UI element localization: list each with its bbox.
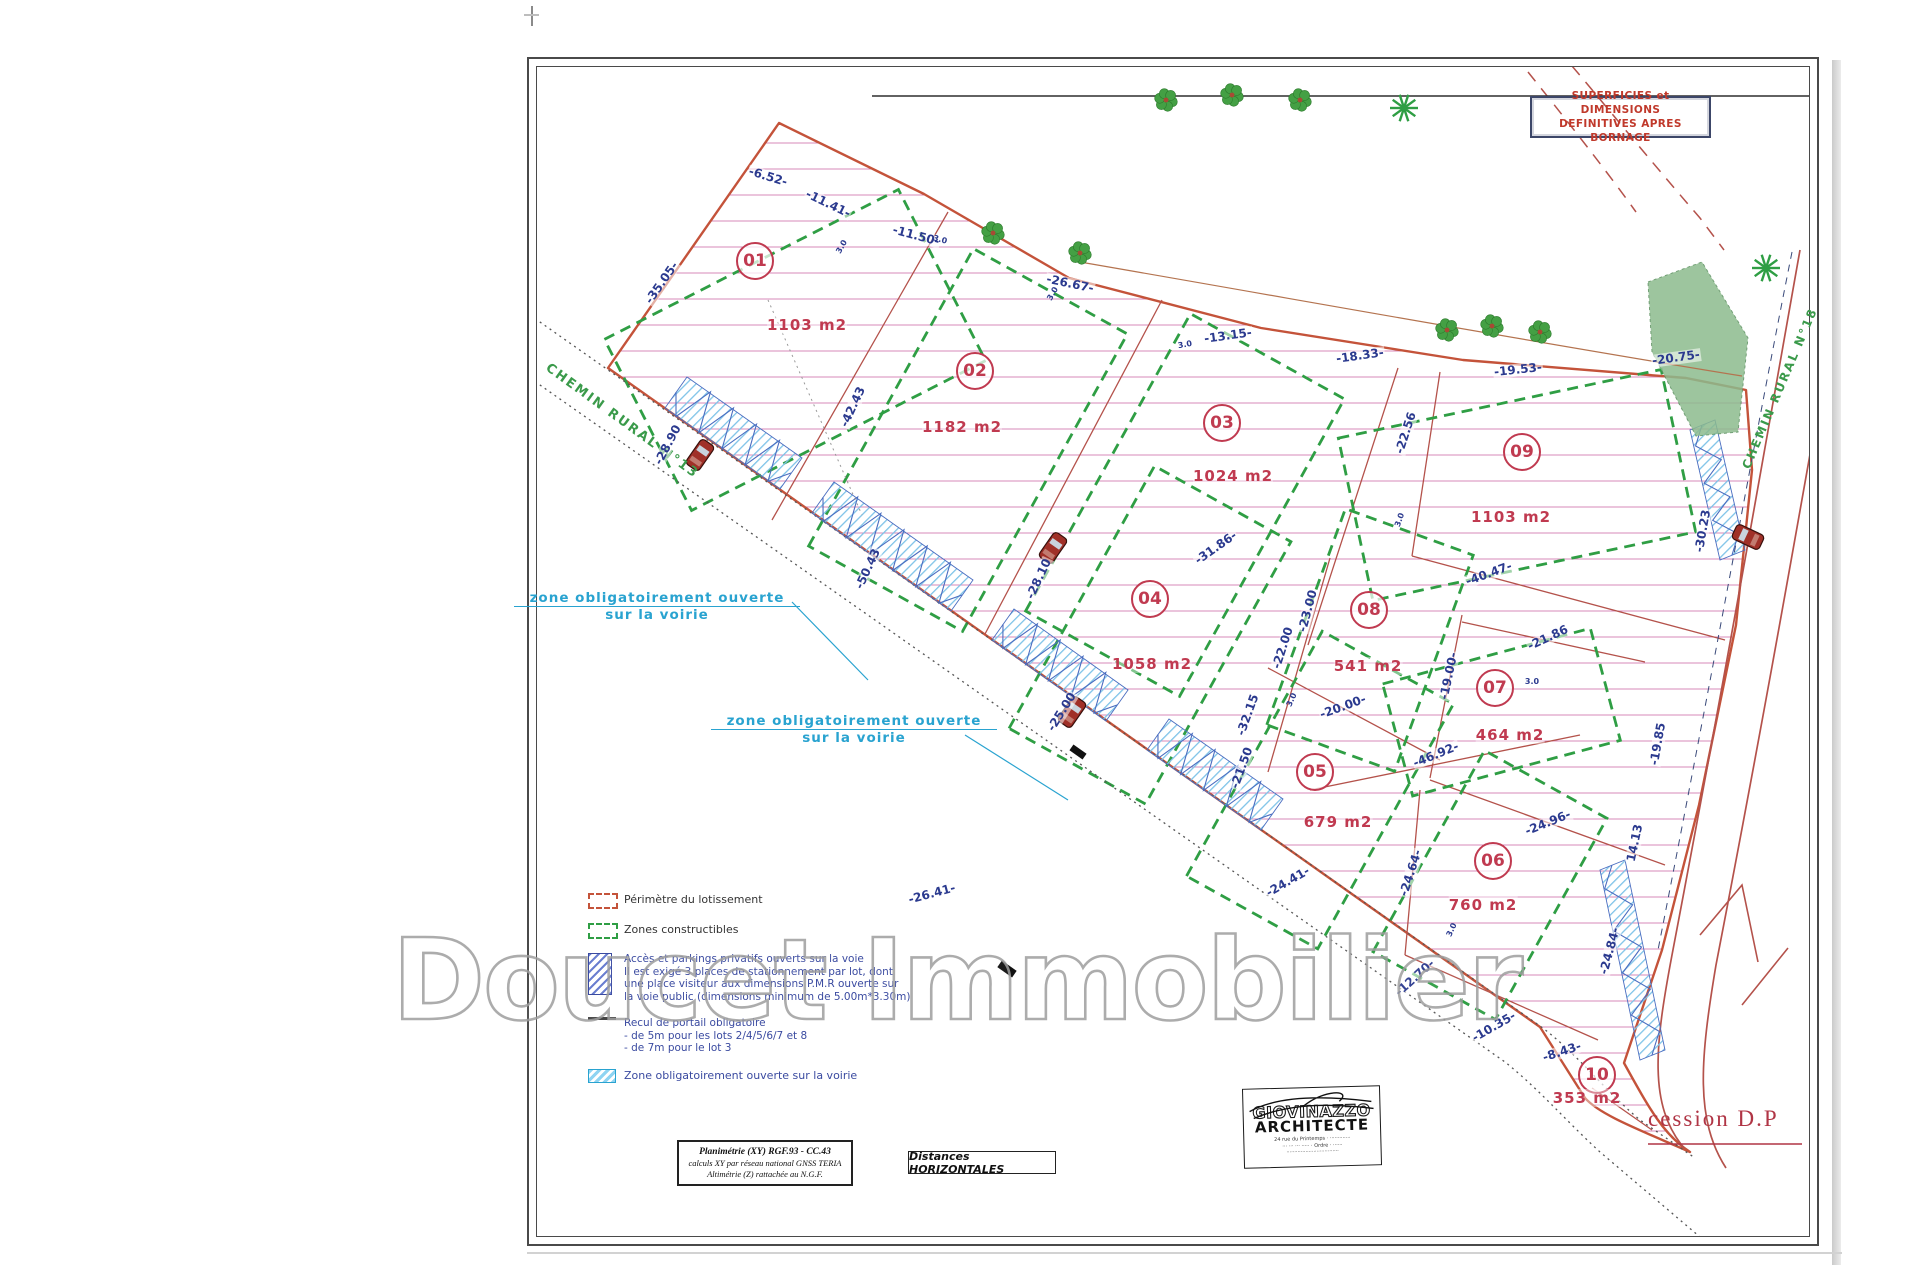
lot-area-05: 679 m2 — [1304, 813, 1373, 831]
lot-area-09: 1103 m2 — [1471, 508, 1551, 526]
legend-symbol-5-icon — [588, 1069, 616, 1083]
legend-row-5: Zone obligatoirement ouverte sur la voir… — [588, 1069, 928, 1083]
open-zone-label-2-line2: sur la voirie — [711, 730, 997, 746]
legend-label-5: Zone obligatoirement ouverte sur la voir… — [624, 1069, 857, 1082]
legend-label-4: Recul de portail obligatoire- de 5m pour… — [624, 1017, 807, 1055]
legend-symbol-1-icon — [588, 893, 618, 909]
legend-row-2: Zones constructibles — [588, 923, 928, 939]
open-zone-label-1: zone obligatoirement ouverte sur la voir… — [514, 590, 800, 623]
open-zone-label-1-line1: zone obligatoirement ouverte — [514, 590, 800, 607]
lot-number-04: 04 — [1131, 580, 1169, 618]
signature-icon — [1243, 1086, 1382, 1124]
open-zone-label-2-line1: zone obligatoirement ouverte — [711, 713, 997, 730]
lot-number-05: 05 — [1296, 753, 1334, 791]
lot-number-07: 07 — [1476, 669, 1514, 707]
lot-area-10: 353 m2 — [1553, 1089, 1622, 1107]
lot-number-01: 01 — [736, 242, 774, 280]
surface-note-line2: DEFINITIVES APRES BORNAGE — [1532, 117, 1709, 145]
stamp-address: 24 rue du Printemps · ················ ·… — [1244, 1134, 1380, 1157]
cession-label: cession D.P — [1648, 1106, 1779, 1132]
lot-area-04: 1058 m2 — [1112, 655, 1192, 673]
legend-row-4: Recul de portail obligatoire- de 5m pour… — [588, 1017, 928, 1055]
survey-line1: Planimétrie (XY) RGF.93 - CC.43 — [679, 1146, 851, 1158]
lot-area-01: 1103 m2 — [767, 316, 847, 334]
lot-number-03: 03 — [1203, 404, 1241, 442]
legend-symbol-2-icon — [588, 923, 618, 939]
lot-area-02: 1182 m2 — [922, 418, 1002, 436]
small-dimension-label: 3.0 — [1525, 678, 1539, 686]
lot-number-02: 02 — [956, 352, 994, 390]
registration-tick — [524, 14, 539, 16]
lot-area-06: 760 m2 — [1449, 896, 1518, 914]
surface-note-box: SUPERFICIES et DIMENSIONS DEFINITIVES AP… — [1530, 96, 1711, 138]
scanned-plan-page: SUPERFICIES et DIMENSIONS DEFINITIVES AP… — [0, 0, 1920, 1280]
survey-line3: Altimétrie (Z) rattachée au N.G.F. — [679, 1169, 851, 1180]
page-bottom-shadow — [527, 1252, 1842, 1254]
lot-area-08: 541 m2 — [1334, 657, 1403, 675]
lot-number-06: 06 — [1474, 842, 1512, 880]
lot-area-03: 1024 m2 — [1193, 467, 1273, 485]
legend-row-1: Périmètre du lotissement — [588, 893, 928, 909]
legend-row-3: Accès et parkings privatifs ouverts sur … — [588, 953, 928, 1003]
legend: Périmètre du lotissementZones constructi… — [588, 893, 928, 1097]
open-zone-label-1-line2: sur la voirie — [514, 607, 800, 623]
legend-label-1: Périmètre du lotissement — [624, 893, 763, 906]
page-edge-shadow — [1832, 60, 1841, 1265]
legend-label-3: Accès et parkings privatifs ouverts sur … — [624, 953, 910, 1003]
legend-symbol-4-icon — [588, 1017, 616, 1023]
registration-tick — [531, 6, 533, 26]
surface-note-line1: SUPERFICIES et DIMENSIONS — [1532, 89, 1709, 117]
lot-number-08: 08 — [1350, 591, 1388, 629]
distances-box: Distances HORIZONTALES — [908, 1151, 1056, 1174]
legend-label-2: Zones constructibles — [624, 923, 738, 936]
legend-symbol-3-icon — [588, 953, 612, 995]
survey-line2: calculs XY par réseau national GNSS TERI… — [679, 1158, 851, 1169]
lot-area-07: 464 m2 — [1476, 726, 1545, 744]
architect-stamp: GIOVINAZZO ARCHITECTE 24 rue du Printemp… — [1242, 1085, 1382, 1169]
survey-info-box: Planimétrie (XY) RGF.93 - CC.43 calculs … — [677, 1140, 853, 1186]
open-zone-label-2: zone obligatoirement ouverte sur la voir… — [711, 713, 997, 746]
lot-number-09: 09 — [1503, 433, 1541, 471]
